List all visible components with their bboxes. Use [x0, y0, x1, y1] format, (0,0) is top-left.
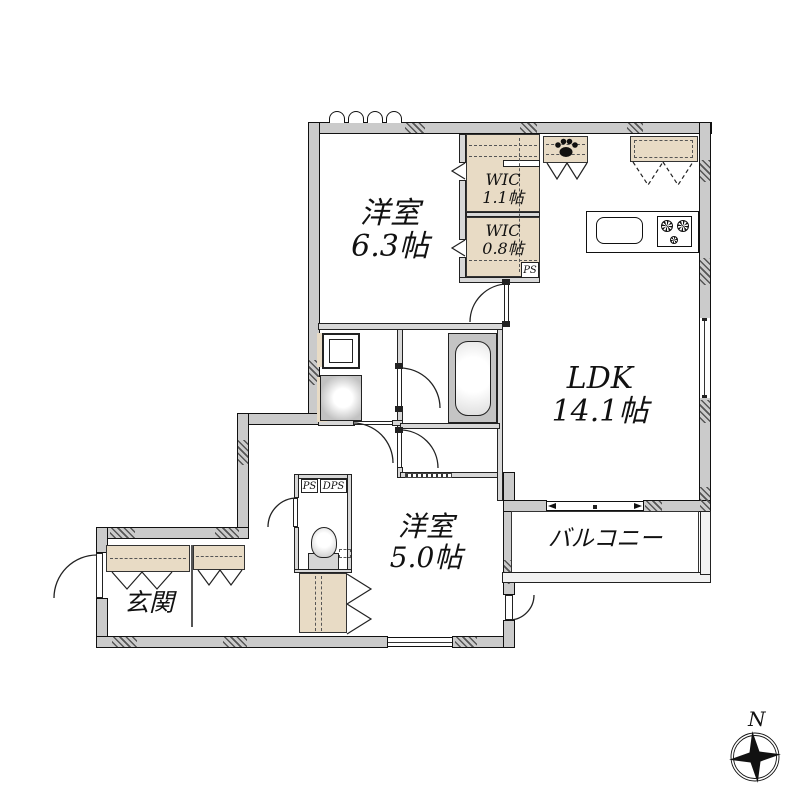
- door-hinge-mark: [395, 406, 403, 412]
- casement-window-icon: [367, 111, 383, 123]
- wall-hatch: [700, 487, 710, 511]
- outer-wall-top: [308, 122, 712, 134]
- room5-door-arc: [400, 430, 438, 468]
- wall-hatch: [455, 637, 477, 647]
- room-size: 14.1帖: [535, 395, 665, 428]
- toilet-left-wall-upper: [294, 474, 299, 498]
- room-name: WIC: [470, 171, 536, 189]
- drain-pipe-space-label: DPS: [323, 481, 345, 492]
- cabinet-shelf-dash: [196, 556, 242, 557]
- room-label-ldk: LDK 14.1帖: [535, 362, 665, 428]
- pipe-space-label: PS: [303, 481, 317, 492]
- wall-hatch: [645, 501, 662, 511]
- wic-shelf-notch: [503, 160, 540, 167]
- compass-needle: [726, 728, 783, 785]
- room-name: 洋室: [325, 197, 455, 230]
- balcony-railing-bottom: [502, 572, 711, 583]
- toilet-right-wall: [347, 474, 352, 573]
- room63-door-leaf: [504, 284, 509, 322]
- balcony-sliding-door: [547, 501, 643, 511]
- bath-door-arc: [400, 368, 440, 408]
- compass-rose-icon: N: [720, 708, 790, 800]
- pet-cabinet: [543, 136, 588, 163]
- entrance-door-leaf: [96, 553, 103, 598]
- balcony-railing-right: [700, 511, 711, 575]
- toilet-left-wall-lower: [294, 527, 299, 573]
- room-name: WIC: [470, 222, 536, 240]
- room-label-western-6-3: 洋室 6.3帖: [325, 197, 455, 263]
- room5-door-leaf: [397, 430, 402, 468]
- bath-door-leaf: [397, 368, 402, 408]
- pipe-space-upper: PS: [521, 262, 539, 278]
- room-size: 6.3帖: [325, 230, 455, 263]
- pipe-space-label: PS: [523, 265, 537, 276]
- wall-hatch: [700, 400, 710, 423]
- window-glass-line: [704, 318, 705, 398]
- room-label-wic-0-8: WIC 0.8帖: [470, 222, 536, 257]
- door-hinge-mark: [502, 321, 510, 327]
- room-label-balcony: バルコニー: [515, 527, 695, 552]
- stove-small-burner-icon: [670, 236, 678, 244]
- room-label-wic-1-1: WIC 1.1帖: [470, 171, 536, 206]
- wall-hatch: [112, 637, 137, 647]
- cabinet-dashed-outline: [634, 140, 693, 158]
- cabinet-shelf-dash: [110, 558, 186, 559]
- room63-door-arc: [470, 284, 508, 322]
- shoe-cabinet-folding-door: [198, 570, 242, 585]
- room-size: 1.1帖: [470, 189, 536, 207]
- shoe-cabinet-right: [193, 545, 245, 570]
- wall-hatch: [110, 528, 135, 538]
- compass-north-label: N: [747, 708, 767, 731]
- outer-wall-step-vertical: [237, 413, 249, 539]
- wall-hatch: [700, 160, 710, 182]
- room5-closet: [299, 573, 347, 633]
- sliding-door-arrow-right: [634, 503, 642, 509]
- cabinet-shelf-dash: [546, 154, 585, 155]
- entrance-door-arc: [54, 555, 97, 598]
- kitchen-sink-icon: [596, 217, 643, 244]
- wall-hatch: [223, 637, 247, 647]
- outer-wall-step-horizontal: [237, 413, 320, 425]
- vanity-unit: [320, 375, 362, 421]
- window-glass-line: [388, 642, 452, 643]
- room-name: 玄関: [113, 589, 185, 617]
- casement-window-icon: [386, 111, 402, 123]
- room5-right-wall-lower: [503, 620, 515, 648]
- stove-burner-icon: [661, 220, 673, 232]
- ldk-right-window: [699, 318, 711, 398]
- door-hinge-mark: [395, 427, 403, 433]
- wall-hatch: [627, 123, 643, 133]
- toilet-door-leaf: [293, 498, 298, 527]
- upper-cabinet-dashed-door: [633, 162, 693, 185]
- wall-hatch: [238, 440, 248, 465]
- window-end-mark: [702, 395, 707, 398]
- wall-hatch: [520, 123, 537, 133]
- room5-bottom-window: [388, 637, 452, 647]
- wic-door-mark: [452, 163, 465, 179]
- bathtub-icon: [455, 341, 491, 416]
- room-label-western-5-0: 洋室 5.0帖: [362, 512, 490, 574]
- window-end-mark: [702, 318, 707, 321]
- pipe-space-lower: PS: [301, 479, 318, 493]
- room-name: LDK: [535, 362, 665, 395]
- cabinet-shelf-dash: [546, 144, 585, 145]
- wall-hatch: [215, 528, 239, 538]
- room-name: バルコニー: [515, 527, 695, 552]
- room63-wic-wall-b: [459, 180, 466, 240]
- washroom-top-wall: [318, 323, 503, 330]
- bath-bottom-wall: [400, 423, 500, 429]
- stove-burner-icon: [677, 220, 689, 232]
- casement-window-icon: [348, 111, 364, 123]
- door-hinge-mark: [502, 279, 510, 285]
- room5-door-sill: [405, 473, 452, 478]
- washing-machine-pan-inner: [329, 339, 353, 363]
- wic-hanger-pipe: [469, 260, 537, 261]
- washroom-door-leaf: [353, 421, 393, 425]
- floor-plan: PS PS DPS 洋室 6.3帖 WIC 1.1帖 WIC 0.8帖 LDK …: [0, 0, 800, 800]
- room-size: 5.0帖: [362, 543, 490, 574]
- shoe-cabinet-folding-door: [112, 572, 172, 589]
- wic-hanger-pipe: [469, 145, 537, 146]
- room-size: 0.8帖: [470, 240, 536, 258]
- closet-folding-door: [347, 574, 371, 634]
- closet-hanger-pipe: [315, 576, 316, 631]
- wic-hanger-pipe: [469, 156, 537, 157]
- casement-window-icon: [329, 111, 345, 123]
- sliding-door-center-mark: [593, 505, 597, 509]
- drain-pipe-space: DPS: [320, 479, 347, 493]
- stove-icon: [657, 216, 692, 247]
- sliding-door-arrow-left: [548, 503, 556, 509]
- washroom-door-arc: [353, 423, 393, 463]
- bath-ldk-wall: [497, 329, 503, 501]
- wall-hatch: [700, 258, 710, 285]
- pet-cabinet-folding-door: [547, 163, 587, 179]
- room5-exterior-door-leaf: [505, 595, 513, 620]
- outer-wall-right-upper: [699, 122, 711, 320]
- toilet-icon: [311, 527, 337, 558]
- door-hinge-mark: [395, 363, 403, 369]
- room-label-entrance: 玄関: [113, 589, 185, 617]
- closet-hanger-pipe: [321, 576, 322, 631]
- room-name: 洋室: [362, 512, 490, 543]
- wall-hatch: [405, 123, 425, 133]
- room63-wic-wall-a: [459, 134, 466, 163]
- toilet-remote: [339, 549, 351, 558]
